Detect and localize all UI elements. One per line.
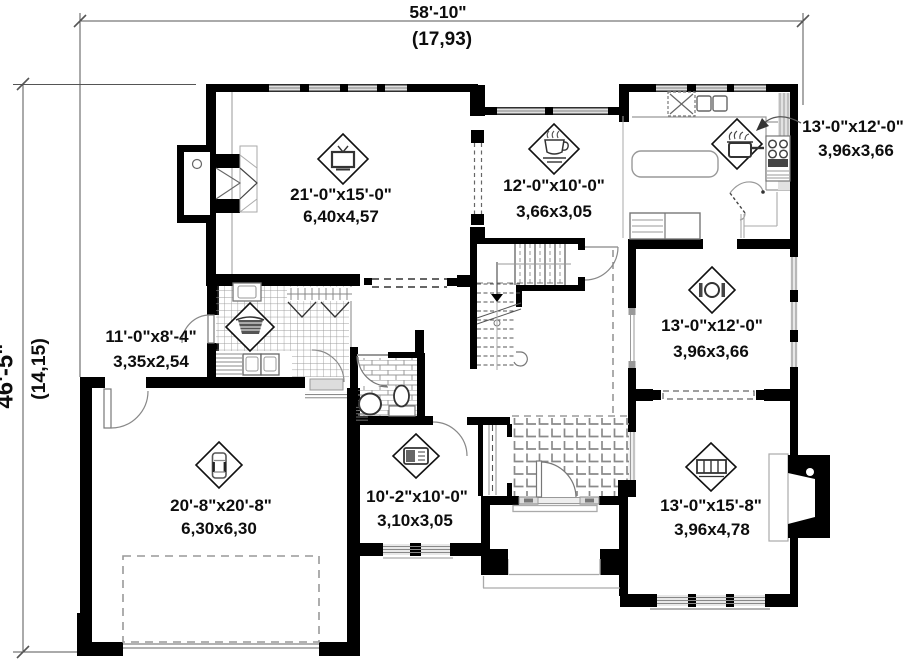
svg-text:3,10x3,05: 3,10x3,05 — [377, 511, 453, 530]
svg-text:(17,93): (17,93) — [412, 29, 472, 50]
svg-text:13'-0"x12'-0": 13'-0"x12'-0" — [802, 117, 904, 136]
svg-text:3,66x3,05: 3,66x3,05 — [516, 202, 592, 221]
svg-text:6,30x6,30: 6,30x6,30 — [181, 519, 257, 538]
svg-text:3,35x2,54: 3,35x2,54 — [113, 352, 189, 371]
svg-text:12'-0"x10'-0": 12'-0"x10'-0" — [503, 176, 605, 195]
svg-text:13'-0"x15'-8": 13'-0"x15'-8" — [660, 496, 762, 515]
svg-text:21'-0"x15'-0": 21'-0"x15'-0" — [290, 185, 392, 204]
svg-text:13'-0"x12'-0": 13'-0"x12'-0" — [661, 316, 763, 335]
svg-text:(14,15): (14,15) — [28, 338, 50, 400]
svg-text:10'-2"x10'-0": 10'-2"x10'-0" — [366, 487, 468, 506]
svg-text:3,96x3,66: 3,96x3,66 — [673, 342, 749, 361]
svg-text:20'-8"x20'-8": 20'-8"x20'-8" — [170, 496, 272, 515]
svg-text:3,96x3,66: 3,96x3,66 — [818, 141, 894, 160]
svg-text:46'-5": 46'-5" — [0, 343, 18, 408]
svg-text:6,40x4,57: 6,40x4,57 — [303, 207, 379, 226]
svg-text:3,96x4,78: 3,96x4,78 — [674, 520, 750, 539]
svg-text:11'-0"x8'-4": 11'-0"x8'-4" — [105, 327, 196, 346]
svg-text:58'-10": 58'-10" — [409, 2, 466, 22]
